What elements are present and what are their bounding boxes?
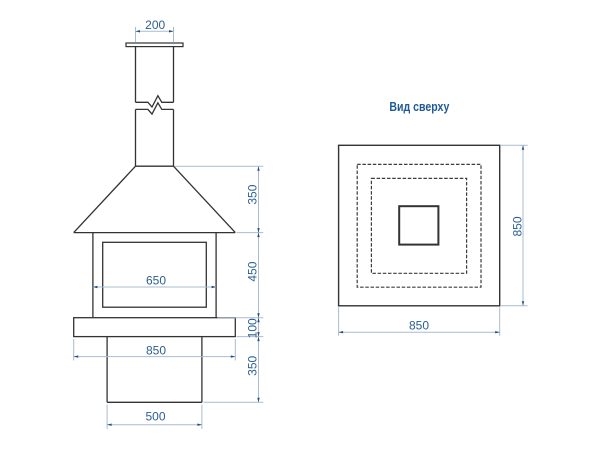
svg-text:350: 350 (245, 184, 259, 204)
svg-text:850: 850 (409, 319, 429, 333)
svg-text:450: 450 (245, 261, 259, 281)
svg-text:500: 500 (145, 410, 165, 424)
svg-text:Вид сверху: Вид сверху (389, 99, 450, 114)
svg-text:850: 850 (146, 343, 166, 357)
svg-text:100: 100 (245, 318, 259, 338)
svg-text:200: 200 (145, 18, 165, 32)
svg-text:350: 350 (245, 355, 259, 375)
svg-text:850: 850 (511, 216, 525, 236)
svg-text:650: 650 (146, 274, 166, 288)
